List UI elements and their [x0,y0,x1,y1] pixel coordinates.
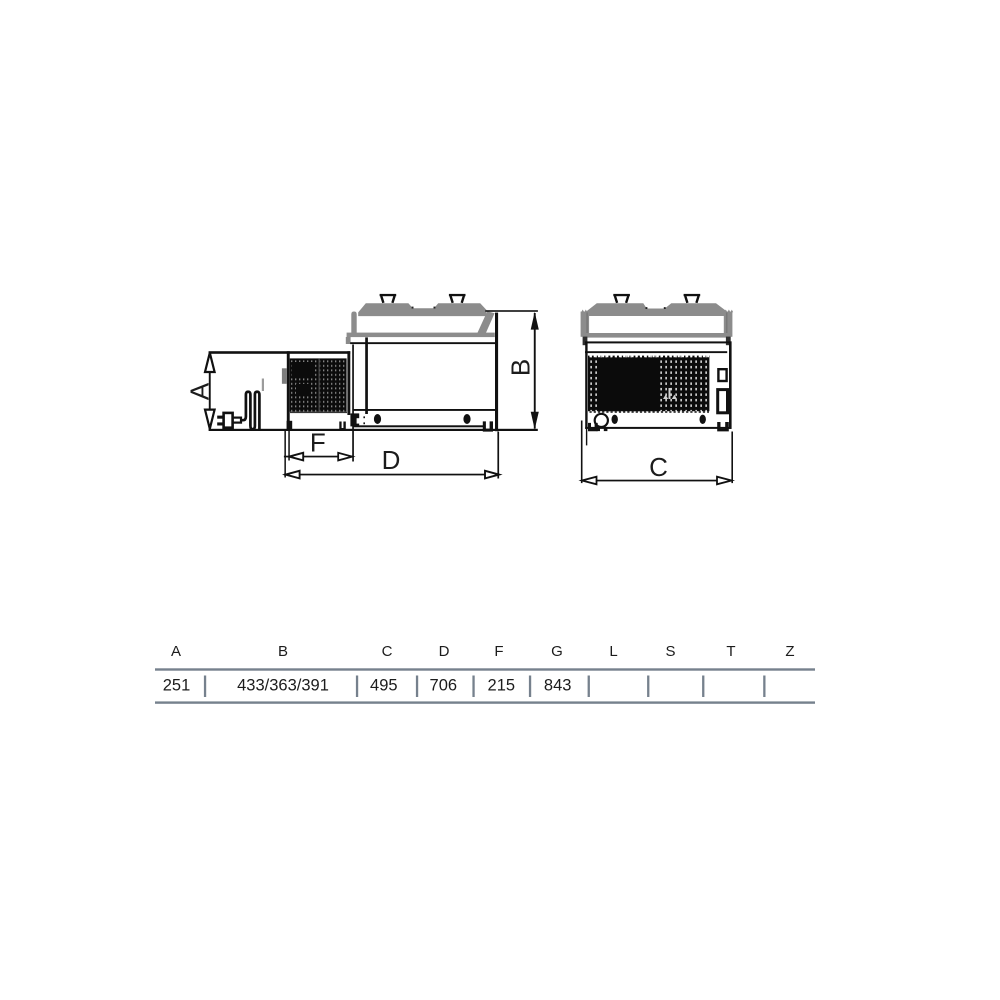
svg-text:F: F [494,643,503,660]
svg-text:B: B [506,359,536,376]
svg-text:251: 251 [163,677,191,695]
svg-text:C: C [382,643,393,660]
svg-text:Z: Z [785,643,794,660]
svg-text:L: L [609,643,617,660]
svg-text:T: T [726,643,735,660]
svg-text:B: B [278,643,288,660]
svg-text:S: S [665,643,675,660]
svg-text:F: F [310,428,326,458]
svg-text:843: 843 [544,677,572,695]
svg-text:D: D [439,643,450,660]
svg-text:215: 215 [488,677,516,695]
svg-text:C: C [649,452,668,482]
svg-text:433/363/391: 433/363/391 [237,677,329,695]
svg-text:D: D [382,445,401,475]
svg-text:A: A [185,382,215,400]
svg-text:A: A [171,643,181,660]
svg-text:706: 706 [430,677,458,695]
svg-text:G: G [551,643,563,660]
svg-text:495: 495 [370,677,398,695]
